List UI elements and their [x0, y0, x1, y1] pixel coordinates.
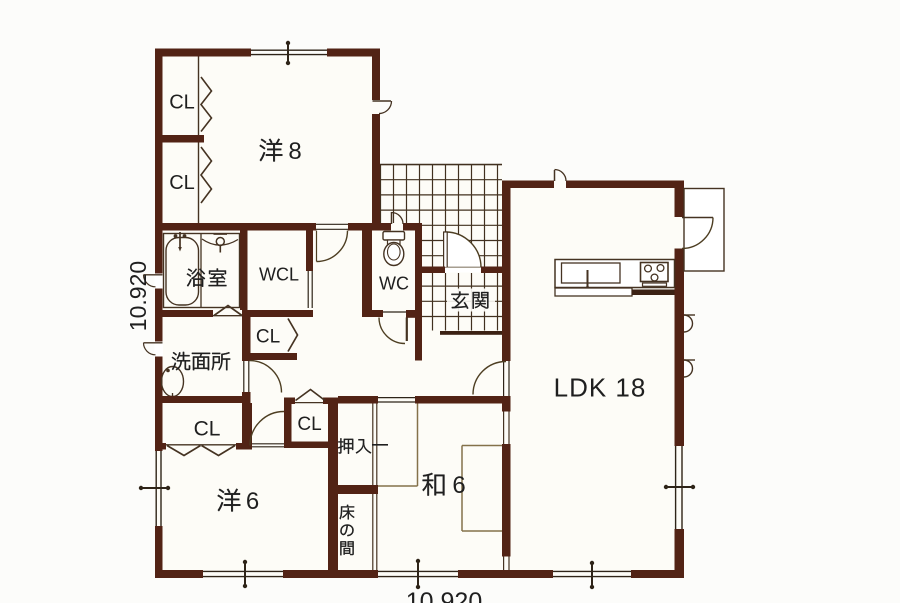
svg-text:6: 6	[246, 488, 259, 515]
svg-text:8: 8	[288, 138, 301, 165]
svg-text:WC: WC	[379, 273, 409, 293]
svg-text:CL: CL	[169, 172, 195, 194]
svg-text:10.920: 10.920	[125, 261, 151, 331]
svg-text:10,920: 10,920	[406, 588, 482, 603]
svg-text:6: 6	[452, 472, 465, 499]
svg-text:CL: CL	[169, 92, 195, 114]
svg-text:WCL: WCL	[259, 264, 299, 284]
svg-text:CL: CL	[194, 417, 221, 440]
svg-text:CL: CL	[256, 327, 280, 348]
svg-text:LDK 18: LDK 18	[554, 373, 647, 403]
svg-text:CL: CL	[297, 414, 321, 435]
